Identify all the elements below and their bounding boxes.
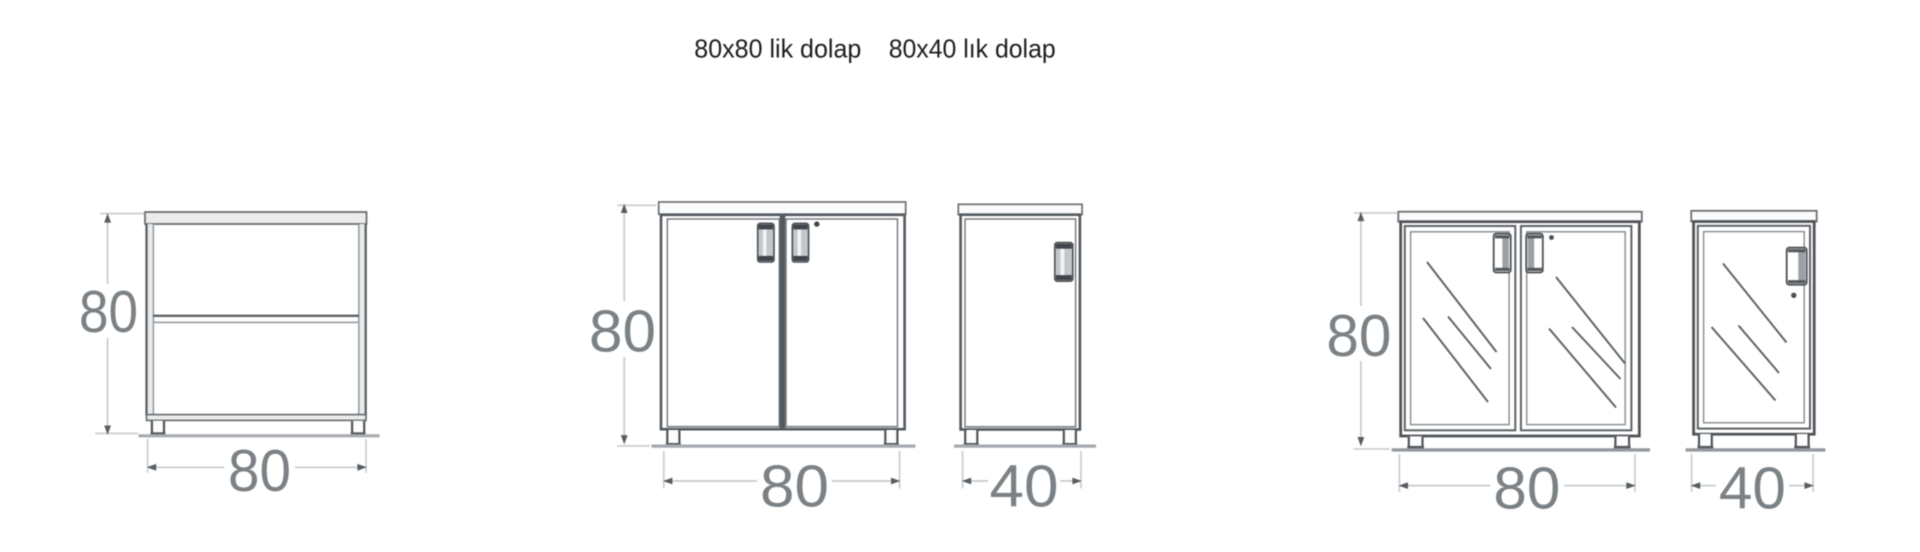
- svg-text:80: 80: [760, 454, 829, 520]
- svg-text:80: 80: [589, 299, 656, 365]
- svg-text:80: 80: [1326, 303, 1391, 369]
- svg-text:40: 40: [1719, 456, 1786, 522]
- svg-text:80: 80: [228, 438, 291, 504]
- svg-text:80x40 lık dolap: 80x40 lık dolap: [889, 34, 1056, 64]
- svg-text:80: 80: [79, 279, 138, 345]
- svg-text:80: 80: [1493, 456, 1560, 522]
- svg-text:80x80 lik dolap: 80x80 lik dolap: [694, 34, 861, 64]
- svg-text:40: 40: [990, 454, 1059, 520]
